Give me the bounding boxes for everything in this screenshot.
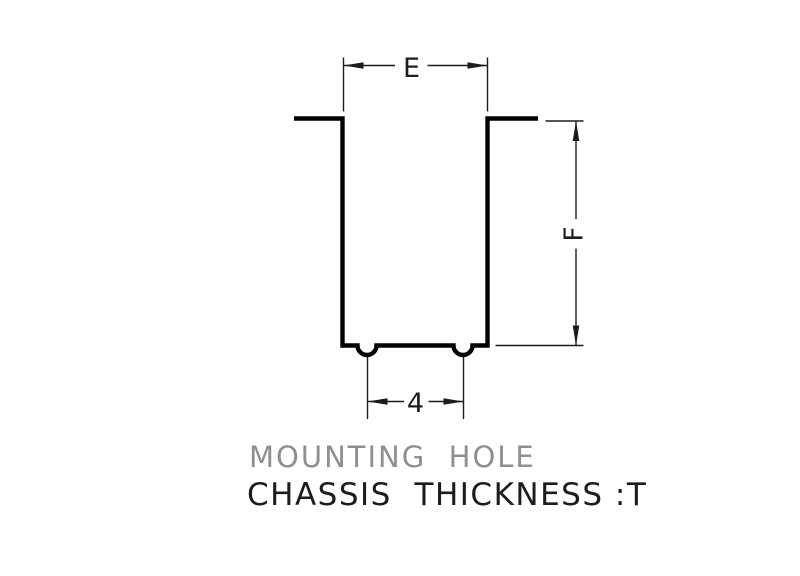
dimension-e-arrow-right — [468, 62, 488, 69]
dimension-pitch-arrow-right — [444, 398, 464, 405]
mounting-hole-drawing: E F 4 MOUNTING HOLE CHASSIS THICKNESS :T — [0, 0, 800, 576]
caption-mounting-hole: MOUNTING HOLE — [249, 440, 536, 474]
drawing-canvas: E F 4 MOUNTING HOLE CHASSIS THICKNESS :T — [0, 0, 800, 576]
channel-outline — [294, 119, 538, 356]
dimension-e-arrow-left — [344, 62, 364, 69]
dimension-pitch-group: 4 — [368, 357, 464, 420]
channel-outline-group — [294, 119, 538, 356]
dimension-f-group: F — [496, 121, 590, 346]
caption-chassis-thickness: CHASSIS THICKNESS :T — [247, 477, 647, 513]
dimension-e-label: E — [403, 53, 420, 84]
dimension-f-arrow-top — [573, 121, 580, 141]
dimension-f-label: F — [560, 227, 590, 242]
dimension-e-group: E — [344, 53, 488, 112]
caption-group: MOUNTING HOLE CHASSIS THICKNESS :T — [247, 440, 647, 513]
dimension-pitch-label: 4 — [407, 388, 424, 419]
dimension-f-arrow-bottom — [573, 326, 580, 346]
dimension-pitch-arrow-left — [368, 398, 388, 405]
